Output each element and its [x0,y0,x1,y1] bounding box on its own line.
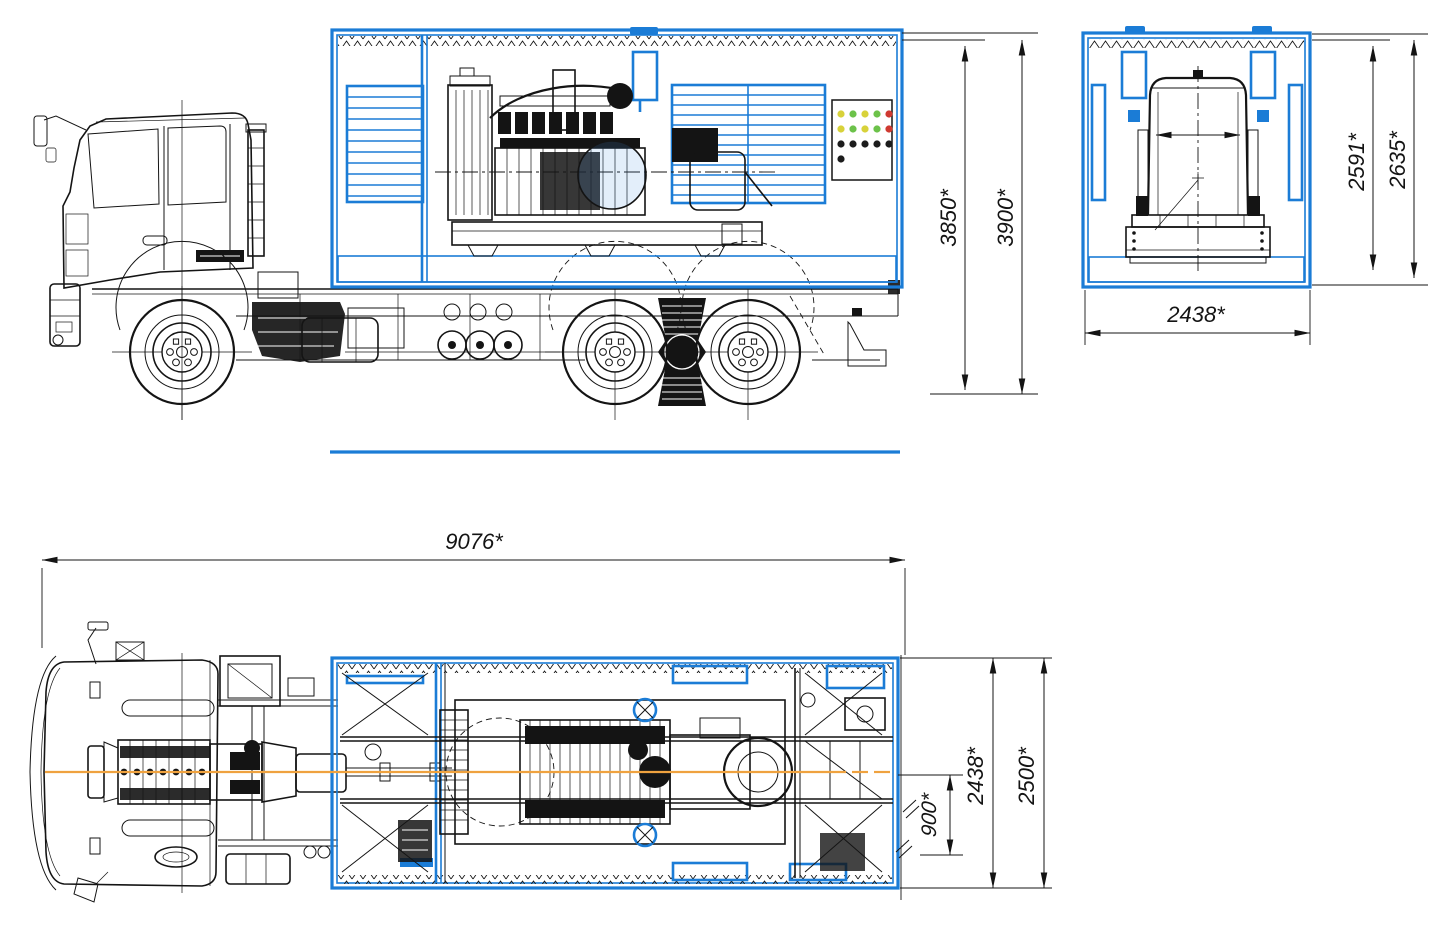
louver-vent-left [347,86,423,202]
indicator-light-black [861,140,868,147]
truck-cab-plan [30,622,218,902]
indicator-light-black [849,140,856,147]
muffler-left [1122,52,1146,98]
radiator-side [448,68,492,220]
rear-view: 2591* 2635* 2438* [1083,26,1428,345]
side-vent-right [1289,85,1302,200]
air-intake-snorkel [246,124,266,256]
dimension-rear-heights: 2591* 2635* [1312,34,1428,285]
indicator-light-green [873,110,880,117]
indicator-light-red [885,125,892,132]
chassis-side [92,280,900,366]
muffler-right [1251,52,1275,98]
dimension-plan-axis-offset: 900* [896,775,963,858]
indicator-light-green [849,125,856,132]
mirror-plan-bottom [74,872,108,902]
indicator-light-yellow [861,125,868,132]
indicator-light-yellow [837,125,844,132]
indicator-light-yellow [837,110,844,117]
dimension-rear-width: 2438* [1085,290,1310,345]
dimension-side-heights: 3850* 3900* [902,33,1038,394]
genset-side [435,68,775,256]
roof-lifting-tab-right [1252,26,1272,34]
dim-label-2500: 2500* [1014,746,1039,806]
dim-label-2438-plan: 2438* [963,746,988,806]
dim-label-2438-rear: 2438* [1166,302,1226,327]
alternator-side [672,128,772,210]
dim-label-9076: 9076* [445,529,504,554]
dim-label-900: 900* [918,791,941,838]
indicator-light-black [837,140,844,147]
indicator-light-red [885,110,892,117]
genset-rear [1126,66,1270,272]
indicator-light-green [873,125,880,132]
mirror-plan-top [88,622,108,664]
roof-hatch [116,642,144,660]
air-tanks [438,304,522,359]
plan-view: 9076* 2438* 2500* 900* [30,529,1052,902]
front-bumper [50,284,80,346]
steering-wheel [155,847,197,867]
control-panel [832,100,893,180]
indicator-light-black [837,155,844,162]
dim-label-2591: 2591* [1344,132,1369,192]
dim-label-3850: 3850* [936,188,961,247]
dimension-plan-length: 9076* [42,529,905,655]
dim-label-2635: 2635* [1385,130,1410,190]
side-vent-left [1092,85,1105,200]
side-view: 3850* 3900* [34,27,1038,452]
indicator-light-black [873,140,880,147]
drawing-sheet: 3850* 3900* [0,0,1432,929]
side-mirror [34,116,86,162]
roof-lifting-tab-left [1125,26,1145,34]
indicator-light-yellow [861,110,868,117]
technical-drawing: 3850* 3900* [0,0,1432,929]
indicator-light-black [885,140,892,147]
rear-bogie [545,241,818,420]
dimension-plan-widths: 2438* 2500* [900,655,1052,900]
genset-skid-side [452,222,762,256]
dim-label-3900: 3900* [993,188,1018,247]
container-rear [1083,26,1310,287]
mudflap-bracket [790,296,886,366]
equipment-box [348,308,404,348]
indicator-light-green [849,110,856,117]
